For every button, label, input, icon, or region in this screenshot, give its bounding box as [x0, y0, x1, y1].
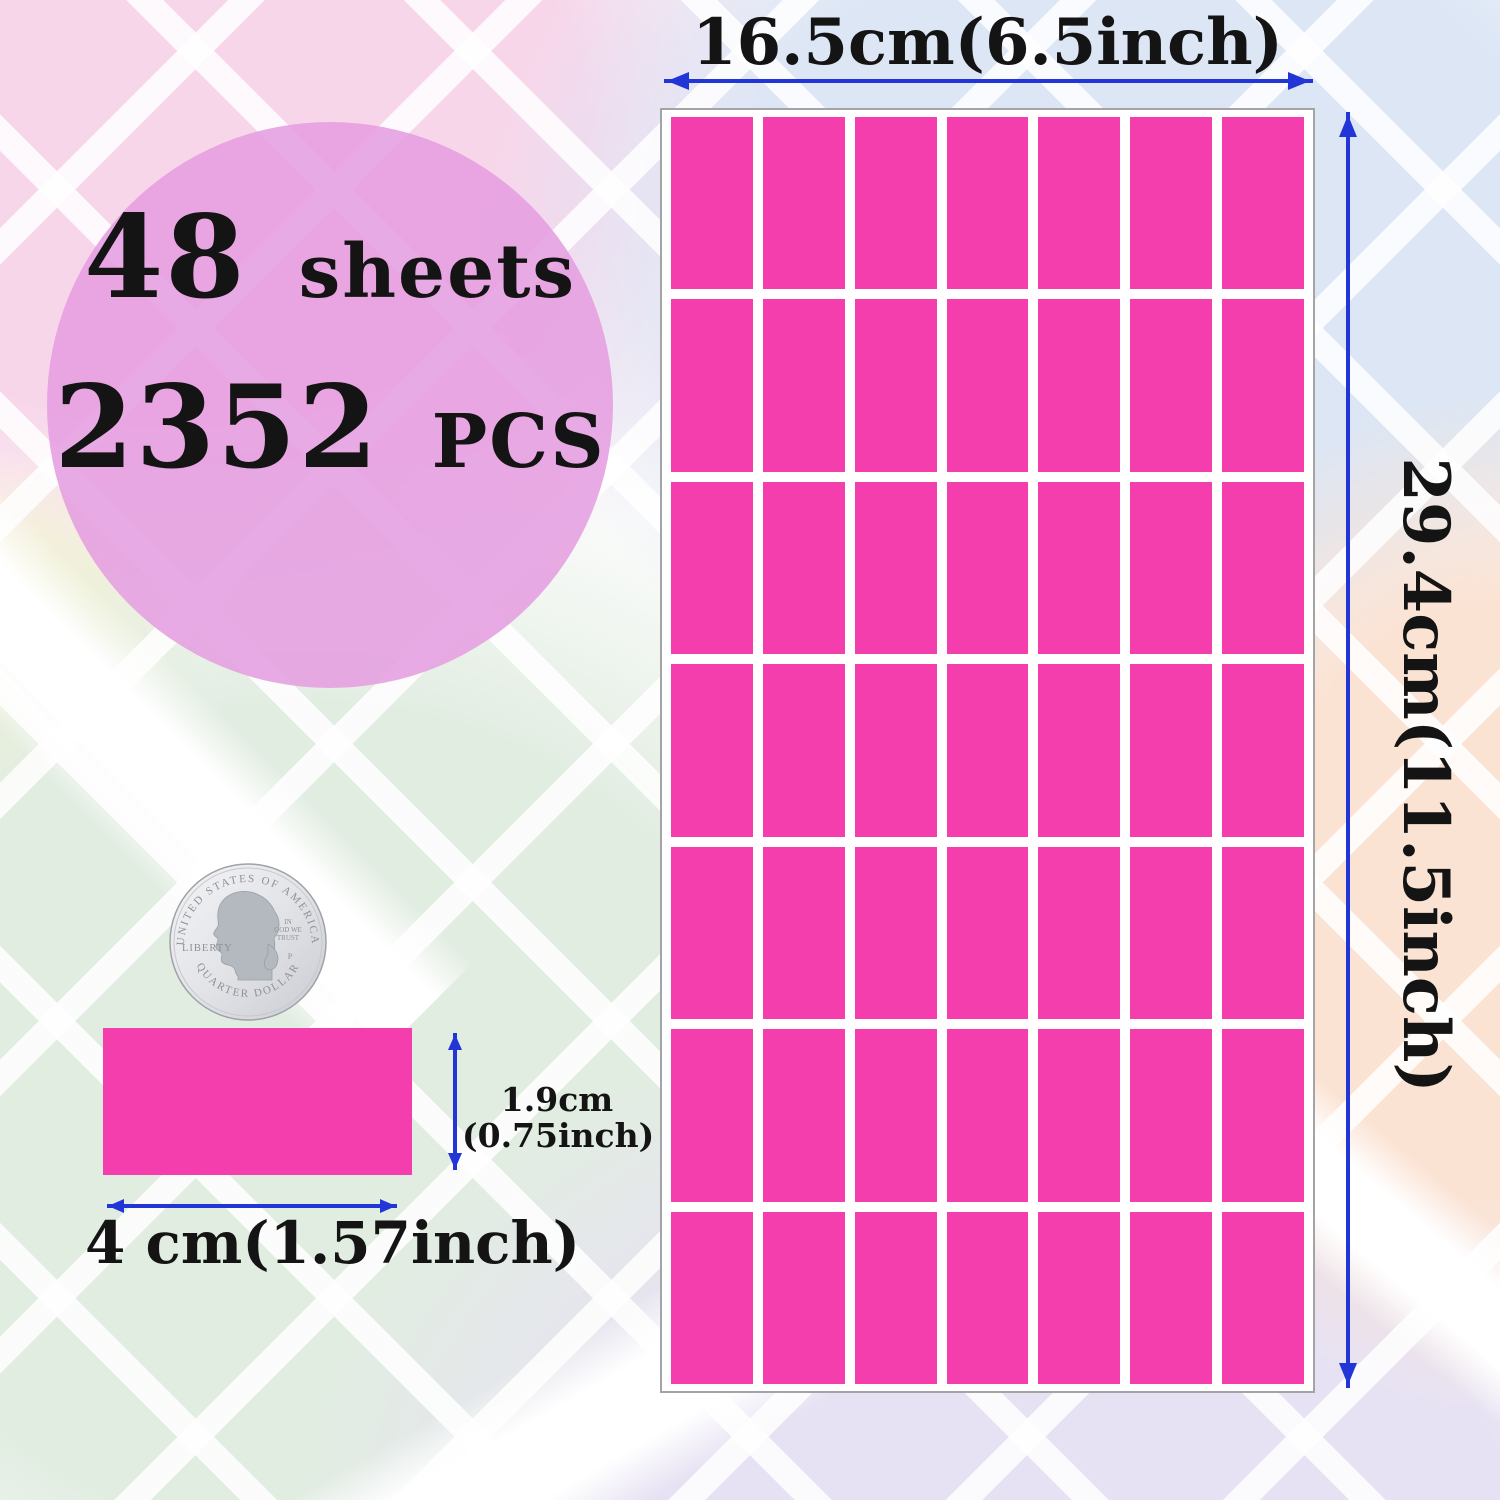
sticker: [1130, 1029, 1212, 1201]
sticker: [671, 847, 753, 1019]
sticker: [763, 847, 845, 1019]
coin-motto-line1: IN: [284, 918, 291, 926]
sticker: [1038, 482, 1120, 654]
sticker: [671, 1029, 753, 1201]
sticker: [1038, 1212, 1120, 1384]
sticker: [947, 664, 1029, 836]
sheet-height-arrow: [1346, 112, 1350, 1388]
sticker: [855, 1212, 937, 1384]
single-sticker: [103, 1028, 412, 1175]
sticker: [1038, 664, 1120, 836]
sheet-width-arrow: [664, 79, 1313, 83]
coin-mint-mark: P: [288, 952, 293, 961]
sticker: [1222, 299, 1304, 471]
sticker: [671, 664, 753, 836]
sticker: [763, 1029, 845, 1201]
sheet-width-label: 16.5cm(6.5inch): [660, 8, 1315, 78]
sticker: [855, 117, 937, 289]
sticker: [1130, 847, 1212, 1019]
sticker-height-inch: (0.75inch): [462, 1118, 652, 1154]
sticker: [947, 117, 1029, 289]
sticker: [671, 1212, 753, 1384]
sticker-height-arrow: [453, 1033, 457, 1170]
sticker: [855, 1029, 937, 1201]
sticker: [1222, 847, 1304, 1019]
sheet-count-unit: sheets: [299, 235, 576, 309]
sticker: [947, 299, 1029, 471]
sticker: [763, 664, 845, 836]
sheet-count: 48 sheets: [47, 200, 613, 314]
sticker: [1130, 664, 1212, 836]
piece-count: 2352 PCS: [47, 370, 613, 484]
sticker: [1038, 117, 1120, 289]
sticker: [1130, 117, 1212, 289]
sticker: [671, 299, 753, 471]
sticker: [947, 1029, 1029, 1201]
product-image: 48 sheets 2352 PCS 16.5cm(6.5inch) 29.4c…: [0, 0, 1500, 1500]
sticker-height-cm: 1.9cm: [462, 1082, 652, 1118]
sticker: [1038, 299, 1120, 471]
sticker: [947, 482, 1029, 654]
sticker: [763, 299, 845, 471]
sticker: [947, 847, 1029, 1019]
sticker: [1038, 1029, 1120, 1201]
sticker: [1130, 482, 1212, 654]
sticker: [763, 1212, 845, 1384]
piece-count-unit: PCS: [432, 405, 606, 479]
sticker: [1222, 1029, 1304, 1201]
sticker: [855, 664, 937, 836]
sticker-height-label: 1.9cm (0.75inch): [462, 1082, 652, 1155]
sticker: [1222, 1212, 1304, 1384]
sticker: [855, 482, 937, 654]
sticker: [1222, 482, 1304, 654]
sticker-sheet: [660, 108, 1315, 1393]
coin-motto-line2: GOD WE: [274, 926, 302, 934]
sticker: [1038, 847, 1120, 1019]
sticker: [855, 847, 937, 1019]
sticker: [671, 117, 753, 289]
sticker: [1130, 1212, 1212, 1384]
sheet-count-value: 48: [84, 200, 247, 314]
sheet-height-label: 29.4cm(11.5inch): [1390, 457, 1460, 1092]
sticker-width-arrow: [107, 1204, 397, 1208]
sticker: [763, 117, 845, 289]
sticker-width-label: 4 cm(1.57inch): [85, 1212, 485, 1276]
piece-count-value: 2352: [54, 370, 379, 484]
sticker: [671, 482, 753, 654]
sticker: [947, 1212, 1029, 1384]
sticker: [855, 299, 937, 471]
sticker: [763, 482, 845, 654]
coin-liberty-text: LIBERTY: [182, 943, 233, 954]
coin-motto-line3: TRUST: [277, 934, 300, 942]
sticker: [1222, 664, 1304, 836]
quarter-coin: UNITED STATES OF AMERICA QUARTER DOLLAR …: [168, 862, 328, 1022]
sticker: [1222, 117, 1304, 289]
sticker: [1130, 299, 1212, 471]
